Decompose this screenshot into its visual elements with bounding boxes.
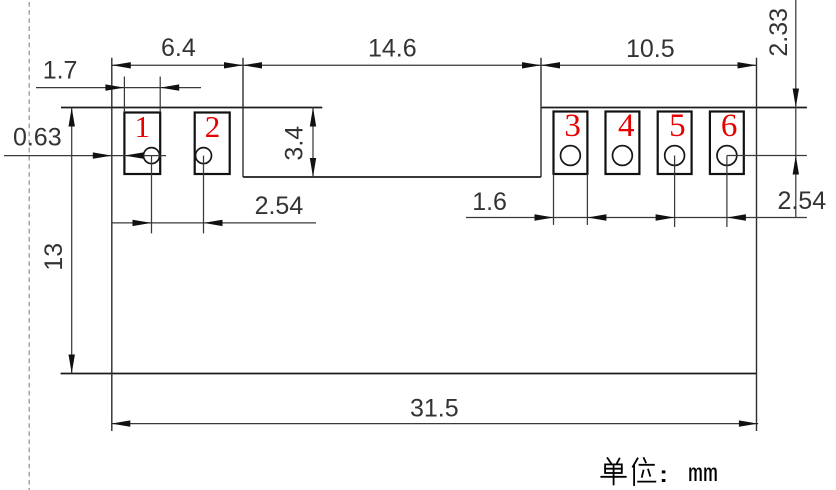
- svg-text:1.6: 1.6: [472, 188, 507, 216]
- svg-text:6: 6: [721, 108, 738, 144]
- svg-text:14.6: 14.6: [368, 35, 417, 63]
- svg-text:2.54: 2.54: [777, 187, 826, 215]
- svg-text:1.7: 1.7: [43, 56, 78, 84]
- svg-text:1: 1: [134, 109, 150, 144]
- svg-text:6.4: 6.4: [161, 34, 196, 62]
- svg-text:3: 3: [564, 108, 581, 144]
- svg-text:4: 4: [618, 108, 635, 144]
- svg-text:13: 13: [40, 243, 68, 271]
- svg-text:0.63: 0.63: [13, 124, 62, 152]
- svg-text:5: 5: [669, 108, 686, 144]
- svg-text:10.5: 10.5: [626, 35, 675, 63]
- svg-text:31.5: 31.5: [410, 394, 459, 422]
- svg-text:3.4: 3.4: [281, 126, 309, 161]
- svg-text:mm: mm: [688, 460, 718, 489]
- svg-text:2: 2: [205, 109, 221, 144]
- svg-text:2.33: 2.33: [765, 8, 793, 57]
- svg-text:2.54: 2.54: [255, 192, 304, 220]
